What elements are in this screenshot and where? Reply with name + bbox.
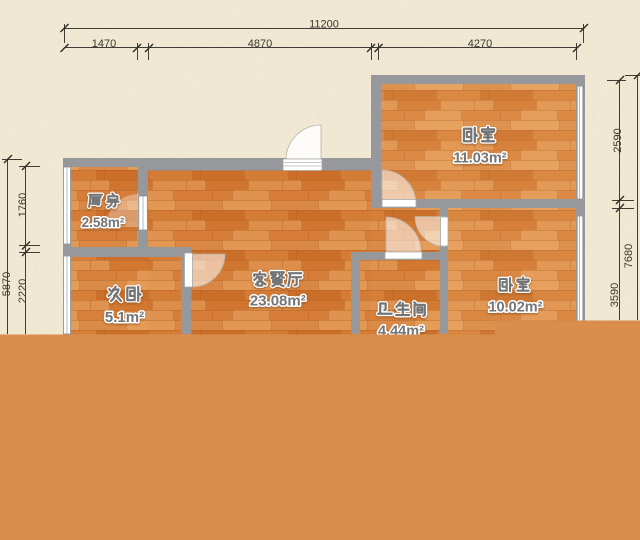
svg-text:5.1m²: 5.1m² (105, 309, 144, 326)
svg-text:2590: 2590 (612, 128, 624, 152)
svg-text:7680: 7680 (623, 244, 635, 268)
svg-text:11.03m²: 11.03m² (453, 151, 506, 167)
svg-text:4870: 4870 (248, 38, 272, 50)
svg-text:1470: 1470 (92, 38, 116, 50)
svg-text:3590: 3590 (609, 283, 621, 307)
svg-text:11200: 11200 (309, 18, 339, 30)
svg-text:4270: 4270 (468, 38, 492, 50)
svg-text:10.02m²: 10.02m² (488, 300, 542, 316)
svg-text:2220: 2220 (17, 279, 29, 303)
svg-text:23.08m²: 23.08m² (250, 293, 306, 310)
svg-text:1760: 1760 (17, 193, 29, 217)
svg-text:5870: 5870 (1, 272, 13, 296)
svg-text:2.58m²: 2.58m² (82, 215, 125, 230)
